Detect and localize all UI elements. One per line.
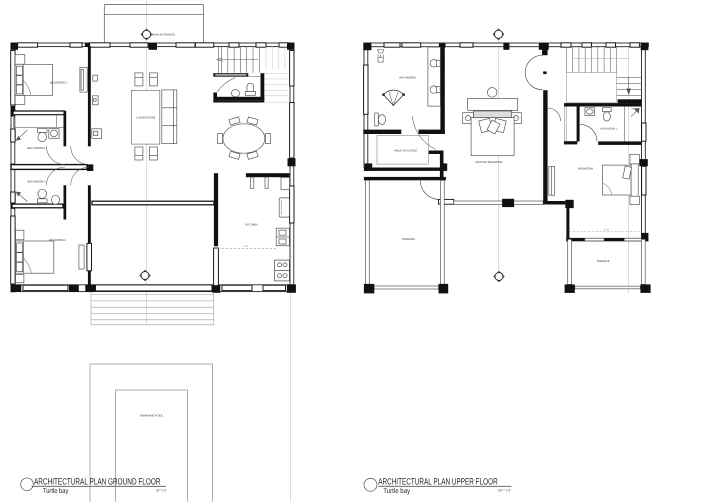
svg-text:5'-0": 5'-0" [605,229,610,232]
svg-text:TERRACE: TERRACE [596,259,609,263]
svg-text:LIVING ROOM: LIVING ROOM [136,115,155,119]
svg-text:WALK-IN CLOSET: WALK-IN CLOSET [394,149,418,153]
svg-text:MASTER BEDROOM: MASTER BEDROOM [476,160,504,164]
svg-text:KITCHEN: KITCHEN [245,222,257,226]
svg-text:1/8" = 1'-0": 1/8" = 1'-0" [498,488,512,492]
svg-text:1/8" = 1'-0": 1/8" = 1'-0" [156,488,167,492]
svg-text:BATHROOM 2: BATHROOM 2 [601,128,619,131]
svg-text:BEDROOM 2: BEDROOM 2 [49,238,66,242]
svg-text:BATHROOM: BATHROOM [400,76,417,80]
svg-text:ARCHITECTURAL PLAN UPPER FLOOR: ARCHITECTURAL PLAN UPPER FLOOR [378,476,498,486]
svg-text:BEDROOM: BEDROOM [578,167,593,171]
svg-text:Turtle bay: Turtle bay [43,487,69,495]
svg-text:5'-0": 5'-0" [244,245,249,248]
svg-text:BATHROOM 2: BATHROOM 2 [27,180,46,184]
svg-text:BATHROOM 1: BATHROOM 1 [27,146,46,150]
svg-text:MAIN ENTRANCE: MAIN ENTRANCE [152,33,175,37]
svg-text:Turtle bay: Turtle bay [383,487,410,495]
svg-text:TERRACE: TERRACE [402,237,415,241]
svg-text:BEDROOM 1: BEDROOM 1 [50,80,67,84]
svg-text:ARCHITECTURAL PLAN GROUND FLOO: ARCHITECTURAL PLAN GROUND FLOOR [34,476,161,486]
svg-text:SWIMMING POOL: SWIMMING POOL [140,414,164,418]
